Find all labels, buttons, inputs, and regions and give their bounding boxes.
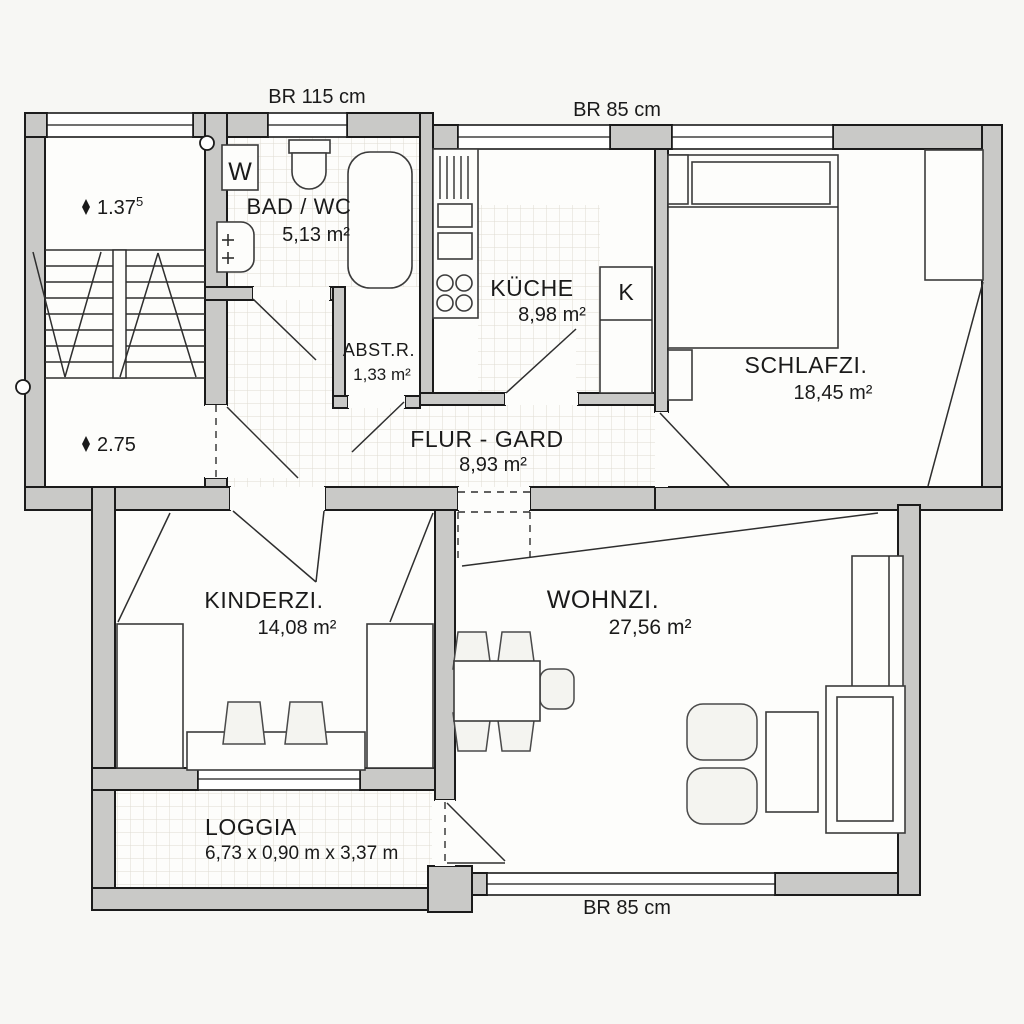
wall xyxy=(530,487,655,510)
room-name-flur: FLUR - GARD xyxy=(410,426,564,452)
kitchen-column-label: K xyxy=(618,279,634,305)
window-dimension-label: BR 115 cm xyxy=(268,86,365,108)
armchair xyxy=(687,704,757,760)
room-name-kinderzimmer: KINDERZI. xyxy=(204,587,323,613)
bedroom-window xyxy=(672,125,833,149)
room-area-wohnzimmer: 27,56 m² xyxy=(609,616,692,639)
wall xyxy=(428,866,472,912)
sofa-seat xyxy=(837,697,893,821)
kitchen-window xyxy=(458,125,610,149)
stair-stringer xyxy=(113,250,126,378)
washing-machine-label: W xyxy=(228,158,252,186)
window-dimension-label: BR 85 cm xyxy=(573,99,661,121)
entry-door-opening xyxy=(205,405,227,478)
shelf-unit xyxy=(852,556,903,688)
stairwell-window xyxy=(47,113,193,137)
floor-plan-page: BR 115 cm BR 85 cm BR 85 cm 1.375 2.75 B… xyxy=(0,0,1024,1024)
room-area-schlafzimmer: 18,45 m² xyxy=(794,382,873,404)
nightstand xyxy=(668,155,688,204)
wall xyxy=(325,487,458,510)
wall xyxy=(92,888,455,910)
kids-bed xyxy=(367,624,433,768)
wall xyxy=(333,396,348,408)
kitchen-door-opening xyxy=(505,393,578,405)
wall xyxy=(25,113,45,510)
wall xyxy=(472,873,487,895)
wall xyxy=(775,873,898,895)
room-name-loggia: LOGGIA xyxy=(205,814,297,840)
room-name-wohnzimmer: WOHNZI. xyxy=(547,586,660,614)
kitchen-sink-bowl xyxy=(438,233,472,259)
nightstand xyxy=(668,350,692,400)
room-area-kueche: 8,98 m² xyxy=(518,304,586,326)
kids-bed xyxy=(117,624,183,768)
room-name-abstellraum: ABST.R. xyxy=(343,340,415,360)
wall xyxy=(433,125,458,149)
bathtub xyxy=(348,152,412,288)
toilet-bowl xyxy=(292,153,326,189)
wall xyxy=(420,393,505,405)
pipe-symbol xyxy=(16,380,30,394)
pipe-symbol xyxy=(200,136,214,150)
washbasin xyxy=(217,222,254,272)
wall xyxy=(25,113,47,137)
window-dimension-label: BR 85 cm xyxy=(583,897,671,919)
room-name-kueche: KÜCHE xyxy=(490,275,574,301)
wall xyxy=(982,125,1002,510)
wall xyxy=(610,125,672,149)
wall xyxy=(360,768,445,790)
room-area-flur: 8,93 m² xyxy=(459,454,527,476)
bathroom-window xyxy=(268,113,347,137)
hall-passage-opening xyxy=(458,487,530,510)
wall xyxy=(25,487,230,510)
room-name-schlafzimmer: SCHLAFZI. xyxy=(745,352,868,378)
dining-table xyxy=(454,661,540,721)
room-area-abstellraum: 1,33 m² xyxy=(353,365,411,384)
storage-door-opening xyxy=(348,396,405,408)
living-room-window xyxy=(487,873,775,895)
wall xyxy=(655,487,1002,510)
wall xyxy=(420,113,433,405)
room-dimensions-loggia: 6,73 x 0,90 m x 3,37 m xyxy=(205,843,398,864)
wall xyxy=(205,287,253,300)
wall xyxy=(92,768,198,790)
stove-burner xyxy=(437,295,453,311)
room-area-kinderzimmer: 14,08 m² xyxy=(258,617,337,639)
stove-burner xyxy=(456,275,472,291)
toilet-cistern xyxy=(289,140,330,153)
wardrobe xyxy=(925,150,983,280)
bath-door-opening xyxy=(253,287,330,300)
chair xyxy=(223,702,265,744)
wall xyxy=(655,149,668,412)
wall xyxy=(405,396,420,408)
bed-pillow xyxy=(692,162,830,204)
kitchen-sink-bowl xyxy=(438,204,472,227)
coffee-table xyxy=(766,712,818,812)
dining-chair xyxy=(540,669,574,709)
wall xyxy=(833,125,1002,149)
chair xyxy=(285,702,327,744)
wall xyxy=(92,487,115,790)
floor-plan-drawing: BR 115 cm BR 85 cm BR 85 cm 1.375 2.75 B… xyxy=(0,0,1024,1024)
armchair xyxy=(687,768,757,824)
level-label-lower: 2.75 xyxy=(97,434,136,456)
bedroom-door-opening xyxy=(655,412,668,487)
kids-room-door-opening xyxy=(230,487,325,510)
wall xyxy=(435,510,455,800)
room-area-bad: 5,13 m² xyxy=(282,224,350,246)
room-name-bad: BAD / WC xyxy=(246,194,351,219)
kids-room-window xyxy=(198,768,360,790)
stove-burner xyxy=(456,295,472,311)
desk xyxy=(187,732,365,770)
stove-burner xyxy=(437,275,453,291)
